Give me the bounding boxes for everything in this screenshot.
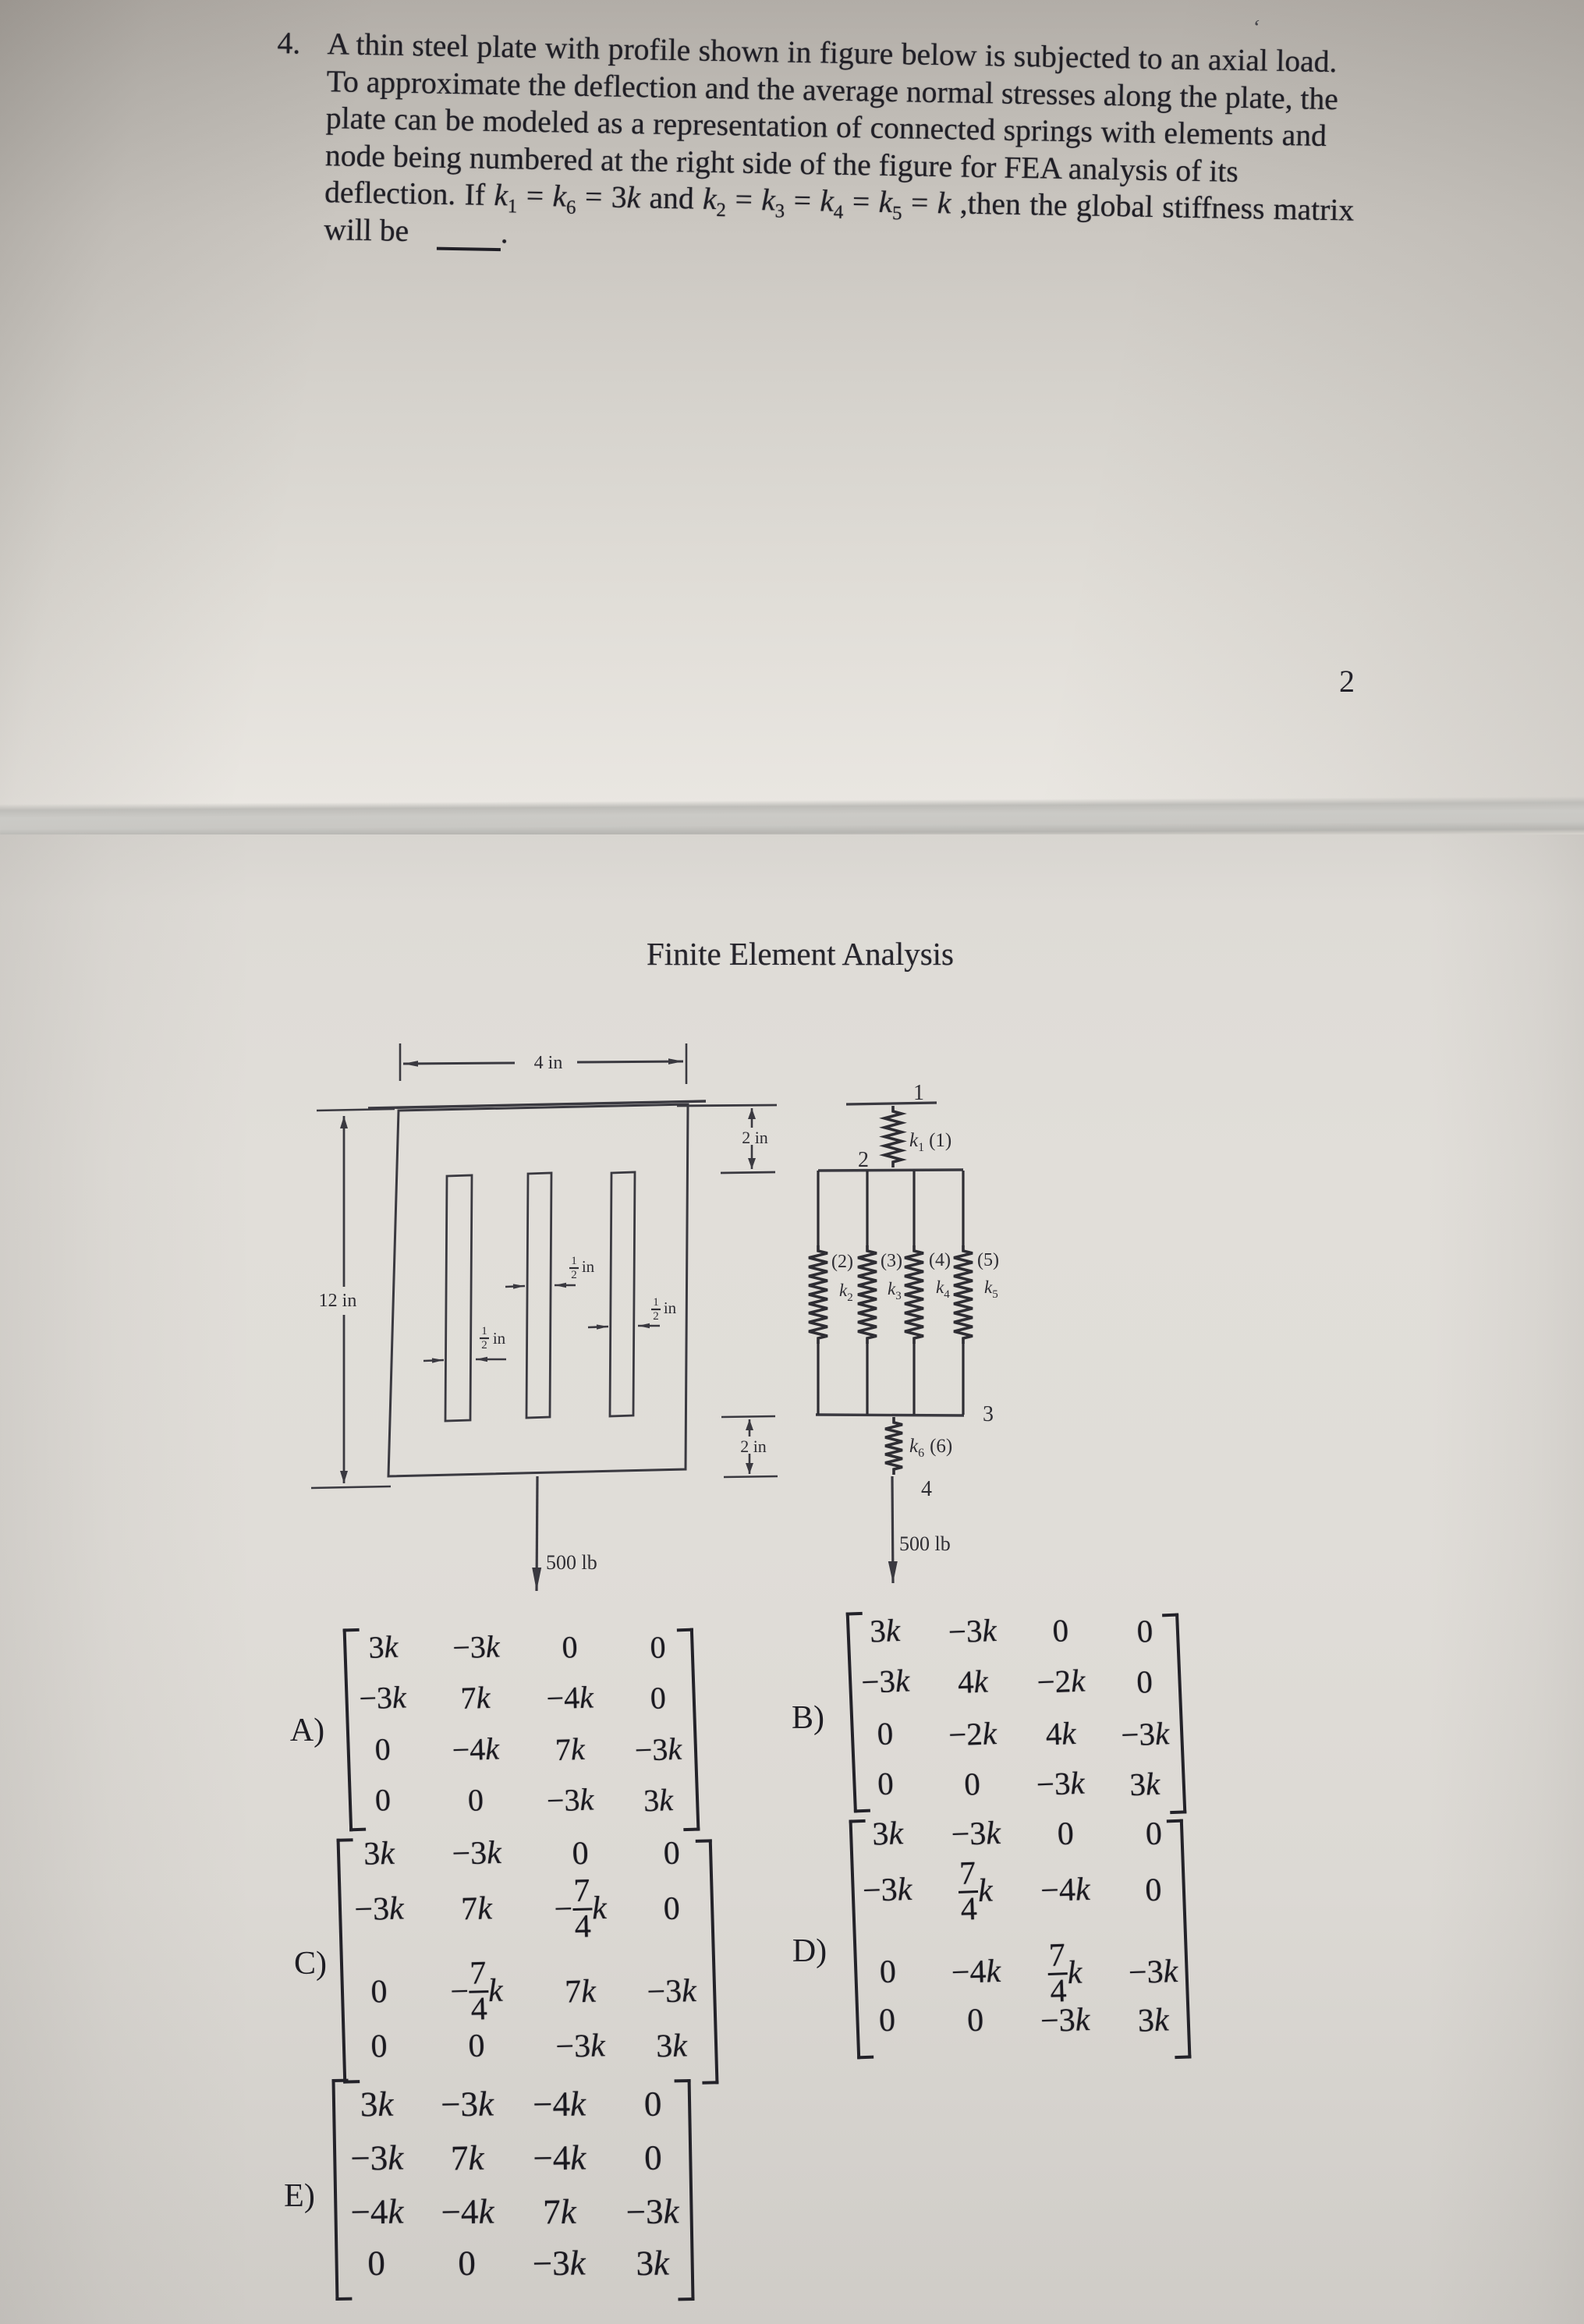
svg-text:2 in: 2 in xyxy=(742,1128,768,1147)
svg-text:(5): (5) xyxy=(977,1250,999,1270)
svg-text:(4): (4) xyxy=(929,1250,951,1270)
svg-text:k1(1): k1(1) xyxy=(909,1130,951,1154)
svg-text:2: 2 xyxy=(653,1310,659,1323)
svg-text:(2): (2) xyxy=(831,1252,853,1272)
svg-text:4 in: 4 in xyxy=(534,1053,563,1073)
svg-text:k4: k4 xyxy=(936,1277,950,1301)
svg-text:in: in xyxy=(664,1298,677,1317)
svg-text:(3): (3) xyxy=(881,1251,902,1271)
svg-text:12 in: 12 in xyxy=(319,1291,357,1311)
svg-text:1: 1 xyxy=(653,1296,659,1309)
svg-text:2 in: 2 in xyxy=(740,1437,767,1456)
svg-text:500 lb: 500 lb xyxy=(899,1532,951,1555)
svg-text:k5: k5 xyxy=(984,1277,998,1301)
svg-text:in: in xyxy=(582,1257,595,1276)
svg-text:1: 1 xyxy=(913,1081,924,1105)
svg-text:2: 2 xyxy=(571,1269,577,1281)
svg-text:3: 3 xyxy=(983,1402,994,1426)
svg-text:k2: k2 xyxy=(839,1281,853,1304)
svg-text:1: 1 xyxy=(481,1325,487,1337)
svg-text:2: 2 xyxy=(858,1148,869,1172)
svg-text:in: in xyxy=(493,1329,506,1348)
svg-text:k3: k3 xyxy=(888,1279,902,1302)
svg-text:500 lb: 500 lb xyxy=(546,1551,597,1574)
svg-text:k6(6): k6(6) xyxy=(909,1436,952,1460)
svg-text:1: 1 xyxy=(571,1255,577,1267)
svg-text:2: 2 xyxy=(481,1339,487,1352)
svg-text:4: 4 xyxy=(921,1477,932,1501)
